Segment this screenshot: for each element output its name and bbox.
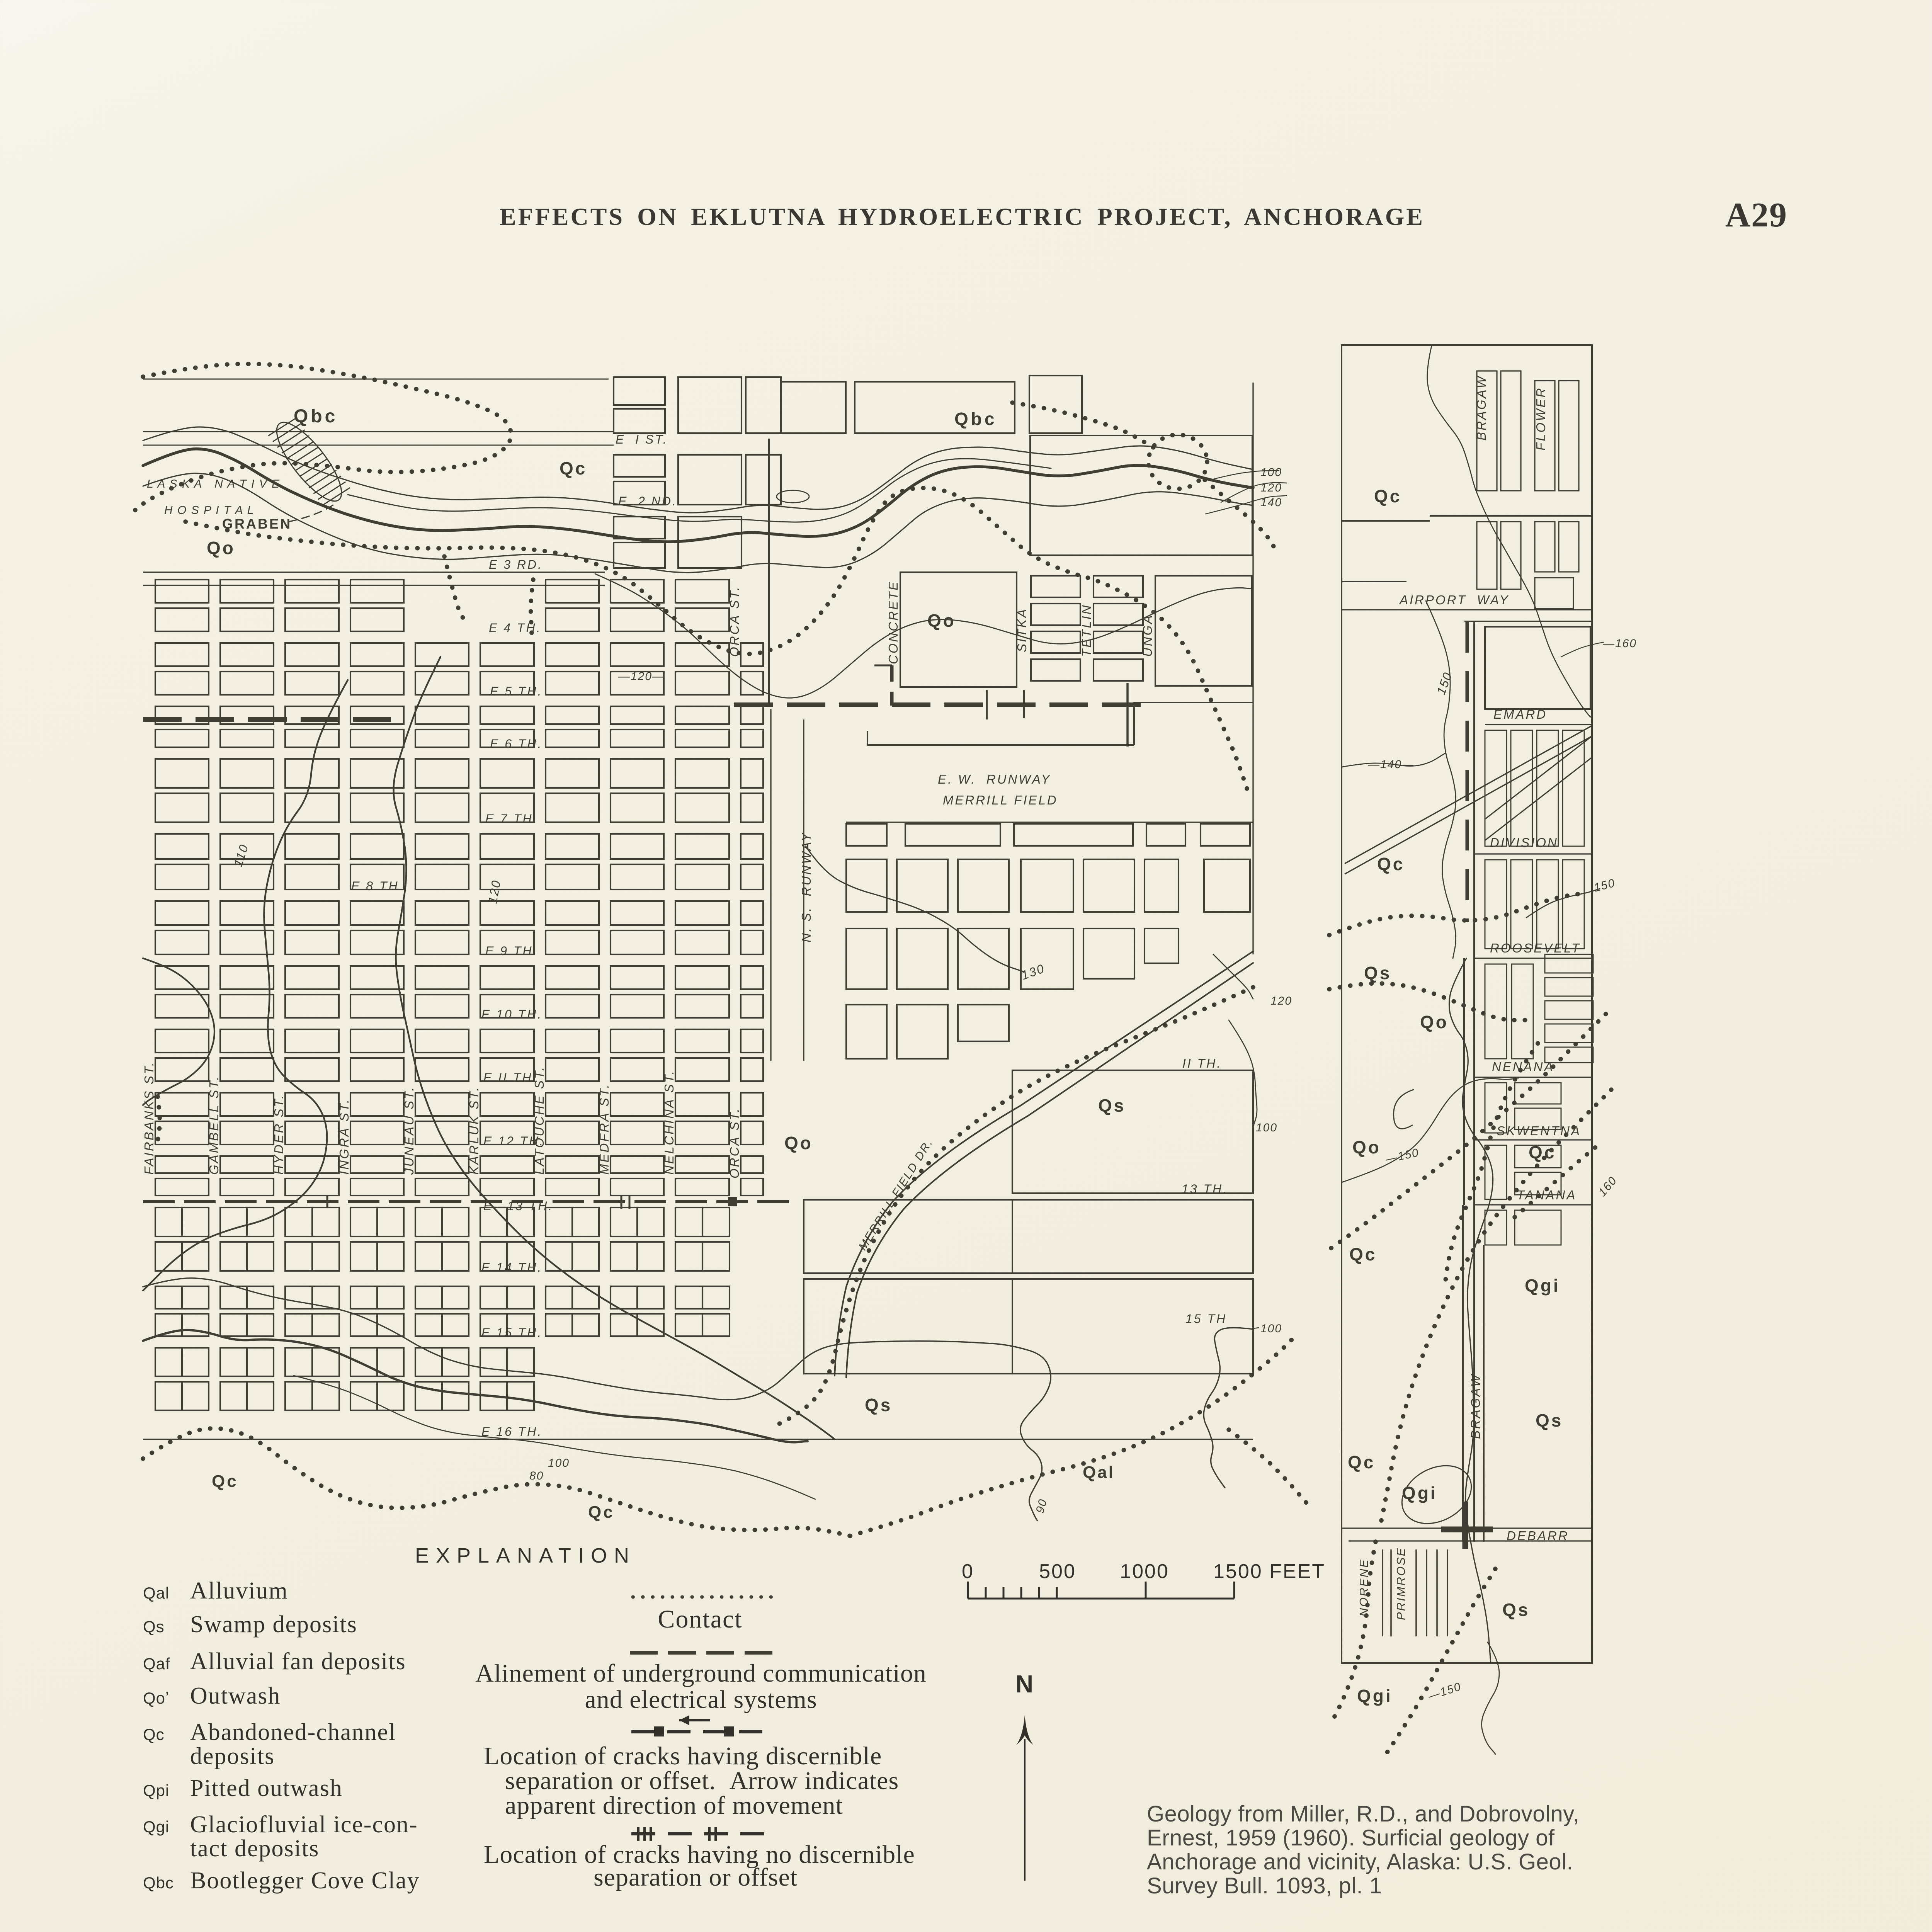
svg-text:E 14 TH.: E 14 TH. [481, 1260, 543, 1274]
svg-text:Survey Bull. 1093, pl. 1: Survey Bull. 1093, pl. 1 [1147, 1873, 1382, 1898]
svg-text:Qs: Qs [865, 1395, 892, 1415]
svg-text:Qs: Qs [1502, 1600, 1530, 1620]
svg-text:E 7 TH.: E 7 TH. [485, 812, 538, 826]
svg-text:deposits: deposits [190, 1743, 275, 1769]
svg-text:500: 500 [1039, 1560, 1076, 1583]
svg-text:E I ST.: E I ST. [616, 432, 668, 446]
svg-text:Qs: Qs [1364, 963, 1391, 983]
svg-text:Qo: Qo [784, 1133, 813, 1153]
svg-text:ORCA ST.: ORCA ST. [727, 585, 742, 657]
svg-text:Qgi: Qgi [1357, 1686, 1393, 1706]
svg-text:Qpi: Qpi [143, 1781, 169, 1799]
svg-text:separation or offset: separation or offset [594, 1863, 798, 1891]
svg-text:E 15 TH.: E 15 TH. [481, 1326, 543, 1340]
svg-text:Qal: Qal [143, 1584, 169, 1602]
svg-text:NORENE: NORENE [1357, 1558, 1371, 1617]
svg-text:E 8 TH.: E 8 TH. [351, 879, 404, 893]
svg-text:1500 FEET: 1500 FEET [1213, 1560, 1325, 1583]
svg-text:E 2 ND.: E 2 ND. [618, 494, 677, 508]
svg-text:E—13 TH.: E—13 TH. [483, 1199, 553, 1213]
svg-text:120: 120 [1270, 995, 1292, 1007]
svg-text:150: 150 [1592, 876, 1617, 894]
svg-text:AIRPORT WAY: AIRPORT WAY [1399, 593, 1510, 607]
svg-text:100: 100 [1256, 1121, 1277, 1134]
svg-text:E 10 TH.: E 10 TH. [481, 1007, 543, 1021]
svg-text:NELCHINA ST.: NELCHINA ST. [662, 1070, 676, 1175]
svg-text:Qc: Qc [1348, 1452, 1375, 1472]
svg-text:Qc: Qc [212, 1472, 238, 1491]
svg-text:DEBARR: DEBARR [1507, 1529, 1569, 1543]
svg-text:1000: 1000 [1120, 1560, 1169, 1583]
svg-text:KARLUK ST.: KARLUK ST. [467, 1086, 481, 1175]
svg-text:E 9 TH.: E 9 TH. [485, 944, 538, 958]
svg-text:Glaciofluvial ice-con-: Glaciofluvial ice-con- [190, 1811, 418, 1838]
svg-text:E 16 TH.: E 16 TH. [481, 1425, 543, 1439]
svg-text:MERRILL FIELD: MERRILL FIELD [943, 793, 1058, 807]
svg-text:Contact: Contact [658, 1605, 742, 1633]
svg-text:150: 150 [1434, 670, 1455, 696]
svg-text:Qc: Qc [1374, 486, 1401, 506]
svg-text:—150: —150 [1426, 1680, 1463, 1703]
svg-text:H O S P I T A L: H O S P I T A L [164, 504, 254, 517]
svg-text:90: 90 [1034, 1497, 1050, 1515]
svg-text:Qs: Qs [1536, 1410, 1563, 1430]
svg-text:and electrical systems: and electrical systems [585, 1685, 817, 1714]
svg-text:100: 100 [1260, 1322, 1282, 1335]
svg-text:Abandoned-channel: Abandoned-channel [190, 1719, 396, 1745]
svg-text:GAMBELL ST.: GAMBELL ST. [207, 1075, 221, 1175]
svg-text:Qc: Qc [143, 1725, 165, 1743]
svg-text:Pitted outwash: Pitted outwash [190, 1775, 343, 1801]
svg-text:PRIMROSE: PRIMROSE [1394, 1547, 1408, 1620]
svg-text:Qgi: Qgi [143, 1818, 169, 1836]
svg-text:EXPLANATION: EXPLANATION [415, 1544, 636, 1567]
svg-text:100: 100 [1260, 466, 1282, 479]
svg-text:Qs: Qs [143, 1617, 165, 1636]
svg-text:Bootlegger Cove Clay: Bootlegger Cove Clay [190, 1867, 420, 1894]
svg-text:Qc: Qc [560, 458, 587, 478]
svg-text:Qc: Qc [588, 1503, 615, 1522]
svg-text:Qaf: Qaf [143, 1655, 170, 1673]
svg-text:—150: —150 [1384, 1146, 1420, 1166]
svg-text:—120—: —120— [618, 670, 665, 683]
svg-text:SKWENTNA: SKWENTNA [1497, 1124, 1581, 1138]
svg-text:Qbc: Qbc [143, 1874, 174, 1892]
svg-text:JUNEAU ST.: JUNEAU ST. [402, 1086, 416, 1175]
svg-text:tact deposits: tact deposits [190, 1835, 319, 1862]
svg-text:Alinement of underground commu: Alinement of underground communication [475, 1659, 927, 1687]
svg-text:Qal: Qal [1083, 1463, 1115, 1482]
svg-text:N. S. RUNWAY: N. S. RUNWAY [799, 832, 813, 942]
svg-text:INGRA ST.: INGRA ST. [337, 1098, 351, 1175]
svg-text:Qc: Qc [1529, 1142, 1556, 1162]
svg-text:Geology from Miller, R.D., and: Geology from Miller, R.D., and Dobrovoln… [1147, 1801, 1579, 1827]
svg-text:separation or offset. Arrow i: separation or offset. Arrow indicates [505, 1767, 899, 1795]
svg-text:ORCA ST.: ORCA ST. [727, 1107, 742, 1179]
svg-text:Qo: Qo [207, 538, 235, 558]
svg-text:Qc: Qc [1377, 854, 1405, 874]
svg-text:MEDFRA ST.: MEDFRA ST. [597, 1083, 611, 1175]
svg-text:13 TH.: 13 TH. [1182, 1182, 1228, 1196]
svg-text:Location of cracks having disc: Location of cracks having discernible [484, 1742, 882, 1770]
svg-text:Anchorage and vicinity, Alaska: Anchorage and vicinity, Alaska: U.S. Geo… [1147, 1849, 1573, 1874]
svg-text:GRABEN: GRABEN [222, 516, 292, 532]
svg-text:15 TH: 15 TH [1185, 1312, 1227, 1326]
svg-text:E 3 RD.: E 3 RD. [489, 558, 543, 571]
svg-text:100: 100 [548, 1457, 570, 1469]
svg-text:80: 80 [529, 1469, 544, 1482]
svg-text:Qbc: Qbc [954, 409, 997, 429]
svg-text:L A S K A N A T I V E: L A S K A N A T I V E [147, 478, 280, 490]
svg-text:—140—: —140— [1367, 758, 1414, 771]
svg-text:UNGA: UNGA [1140, 614, 1155, 657]
svg-text:MERRILL FIELD DR.: MERRILL FIELD DR. [856, 1136, 935, 1253]
svg-text:Qc: Qc [1349, 1244, 1377, 1264]
svg-text:TETLIN: TETLIN [1079, 604, 1094, 657]
svg-text:LATOUCHE ST.: LATOUCHE ST. [532, 1066, 546, 1175]
svg-text:Qgi: Qgi [1525, 1276, 1560, 1296]
svg-text:Qoʼ: Qoʼ [143, 1689, 169, 1707]
svg-text:FAIRBANKS ST.: FAIRBANKS ST. [142, 1061, 156, 1175]
svg-text:Ernest, 1959 (1960). Surfici: Ernest, 1959 (1960). Surficial geology o… [1147, 1825, 1555, 1850]
svg-text:CONCRETE: CONCRETE [886, 580, 900, 664]
svg-text:Alluvium: Alluvium [190, 1578, 288, 1604]
svg-text:Qo: Qo [1420, 1012, 1449, 1032]
svg-text:0: 0 [962, 1560, 974, 1583]
svg-text:II TH.: II TH. [1182, 1056, 1222, 1070]
svg-text:Qs: Qs [1098, 1095, 1126, 1116]
svg-text:ROOSEVELT: ROOSEVELT [1490, 941, 1581, 955]
svg-text:NENANA: NENANA [1492, 1060, 1554, 1074]
svg-text:E 4 TH.: E 4 TH. [489, 621, 541, 635]
svg-text:E. W. RUNWAY: E. W. RUNWAY [938, 772, 1051, 786]
svg-text:EMARD: EMARD [1493, 707, 1547, 721]
svg-text:Swamp deposits: Swamp deposits [190, 1611, 357, 1638]
svg-text:160: 160 [1596, 1174, 1619, 1199]
svg-text:140: 140 [1260, 496, 1282, 509]
svg-text:TANANA: TANANA [1517, 1188, 1577, 1202]
svg-text:apparent direction of movement: apparent direction of movement [505, 1791, 843, 1820]
svg-text:Qo: Qo [1352, 1137, 1381, 1157]
svg-text:120: 120 [1260, 481, 1282, 494]
svg-text:FLOWER: FLOWER [1534, 387, 1548, 451]
svg-text:Qo: Qo [927, 611, 956, 631]
svg-text:Qgi: Qgi [1402, 1483, 1437, 1503]
svg-text:E 6 TH.: E 6 TH. [490, 737, 543, 751]
svg-text:Qbc: Qbc [294, 406, 338, 427]
svg-text:130: 130 [1019, 961, 1047, 982]
svg-text:BRAGAW: BRAGAW [1474, 375, 1488, 440]
svg-text:E II TH.: E II TH. [483, 1071, 537, 1085]
svg-text:E 5 TH.: E 5 TH. [490, 684, 543, 698]
svg-text:BRAGAW: BRAGAW [1468, 1373, 1483, 1439]
svg-text:DIVISION: DIVISION [1490, 835, 1558, 850]
svg-text:N: N [1015, 1670, 1033, 1698]
svg-text:Alluvial fan deposits: Alluvial fan deposits [190, 1648, 406, 1675]
svg-text:HYDER ST.: HYDER ST. [272, 1094, 286, 1175]
svg-text:SITKA: SITKA [1015, 608, 1029, 652]
svg-text:Outwash: Outwash [190, 1683, 281, 1709]
svg-text:—160: —160 [1602, 637, 1637, 650]
